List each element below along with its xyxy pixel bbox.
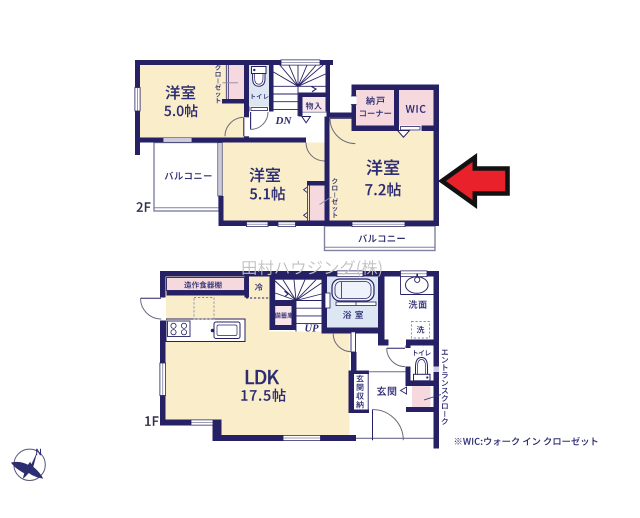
svg-text:UP: UP — [305, 323, 320, 334]
svg-text:DN: DN — [275, 115, 293, 127]
